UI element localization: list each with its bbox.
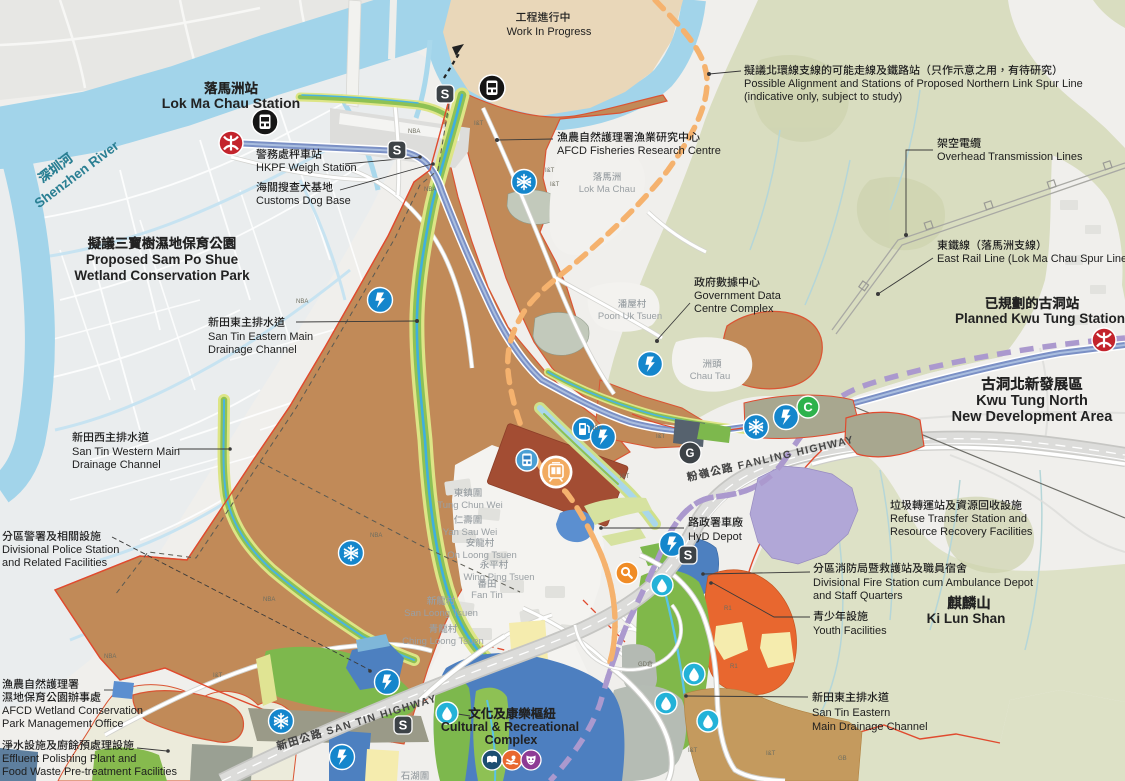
svg-text:分區警署及相關設施: 分區警署及相關設施 <box>2 530 101 543</box>
svg-text:永平村: 永平村 <box>480 559 509 571</box>
svg-text:I&T: I&T <box>620 474 630 480</box>
svg-text:I&T: I&T <box>688 748 698 754</box>
svg-text:文化及康樂樞紐: 文化及康樂樞紐 <box>467 707 556 721</box>
svg-text:and Related Facilities: and Related Facilities <box>2 557 108 569</box>
svg-text:NBA: NBA <box>590 426 602 432</box>
svg-text:Ching Loong Tsuen: Ching Loong Tsuen <box>402 636 484 647</box>
svg-text:NBA: NBA <box>104 654 116 660</box>
svg-text:Chau Tau: Chau Tau <box>690 371 731 382</box>
svg-text:番田: 番田 <box>477 579 496 590</box>
svg-text:East Rail Line (Lok Ma Chau Sp: East Rail Line (Lok Ma Chau Spur Line) <box>937 253 1125 265</box>
svg-text:海關搜查犬基地: 海關搜查犬基地 <box>256 181 333 194</box>
svg-text:NBA: NBA <box>263 597 275 603</box>
svg-text:Overhead Transmission Lines: Overhead Transmission Lines <box>937 151 1083 163</box>
svg-text:政府數據中心: 政府數據中心 <box>694 276 760 289</box>
svg-text:淨水設施及廚餘預處理設施: 淨水設施及廚餘預處理設施 <box>2 739 134 752</box>
svg-text:I&T: I&T <box>545 168 555 174</box>
svg-text:落馬洲: 落馬洲 <box>593 171 622 183</box>
svg-text:青少年設施: 青少年設施 <box>813 610 868 623</box>
svg-text:Planned Kwu Tung Station: Planned Kwu Tung Station <box>955 311 1125 326</box>
svg-text:AFCD Fisheries Research Centre: AFCD Fisheries Research Centre <box>557 145 721 157</box>
svg-text:NBA: NBA <box>408 129 420 135</box>
svg-text:Complex: Complex <box>485 733 538 747</box>
svg-text:垃圾轉運站及資源回收設施: 垃圾轉運站及資源回收設施 <box>890 499 1022 512</box>
svg-text:Yan Sau Wei: Yan Sau Wei <box>443 527 498 538</box>
svg-text:新龍村: 新龍村 <box>427 595 456 607</box>
svg-text:Lok Ma Chau: Lok Ma Chau <box>579 184 636 195</box>
svg-text:警務處秤車站: 警務處秤車站 <box>256 148 322 161</box>
svg-text:R1: R1 <box>730 664 738 670</box>
svg-text:Wing Ping Tsuen: Wing Ping Tsuen <box>463 572 534 583</box>
svg-text:Customs Dog Base: Customs Dog Base <box>256 195 351 207</box>
svg-text:分區消防局暨救護站及職員宿舍: 分區消防局暨救護站及職員宿舍 <box>813 562 967 575</box>
svg-text:新田西主排水道: 新田西主排水道 <box>72 431 149 444</box>
svg-text:已規劃的古洞站: 已規劃的古洞站 <box>985 296 1080 311</box>
svg-text:Ki Lun Shan: Ki Lun Shan <box>927 611 1006 626</box>
svg-text:安龍村: 安龍村 <box>466 537 495 549</box>
svg-text:Tung Chun Wei: Tung Chun Wei <box>437 500 502 511</box>
svg-text:Possible Alignment and Station: Possible Alignment and Stations of Propo… <box>744 78 1083 90</box>
svg-text:HKPF Weigh Station: HKPF Weigh Station <box>256 162 357 174</box>
svg-text:Cultural & Recreational: Cultural & Recreational <box>441 720 579 734</box>
svg-text:Fan Tin: Fan Tin <box>471 590 503 601</box>
svg-text:I&T: I&T <box>213 673 223 679</box>
svg-text:Food Waste Pre-treatment Facil: Food Waste Pre-treatment Facilities <box>2 766 178 778</box>
svg-text:新田東主排水道: 新田東主排水道 <box>208 316 285 329</box>
svg-text:Drainage Channel: Drainage Channel <box>208 344 297 356</box>
svg-text:Park Management Office: Park Management Office <box>2 718 123 730</box>
svg-text:東鐵線（落馬洲支線）: 東鐵線（落馬洲支線） <box>937 239 1047 252</box>
svg-text:NBA: NBA <box>424 187 436 193</box>
svg-text:Government Data: Government Data <box>694 290 782 302</box>
svg-text:San Tin Western Main: San Tin Western Main <box>72 446 180 458</box>
svg-text:San Tin Eastern: San Tin Eastern <box>812 707 890 719</box>
svg-text:and Staff Quarters: and Staff Quarters <box>813 590 903 602</box>
svg-text:NBA: NBA <box>370 533 382 539</box>
svg-text:San Tin Eastern Main: San Tin Eastern Main <box>208 331 313 343</box>
svg-text:石湖圍: 石湖圍 <box>401 771 430 781</box>
svg-text:GD倉: GD倉 <box>638 660 653 668</box>
svg-text:Wetland Conservation Park: Wetland Conservation Park <box>74 268 250 283</box>
svg-text:Work In Progress: Work In Progress <box>507 26 592 38</box>
svg-text:Effluent Polishing Plant and: Effluent Polishing Plant and <box>2 753 136 765</box>
svg-text:I&T: I&T <box>550 182 560 188</box>
svg-text:Resource Recovery Facilities: Resource Recovery Facilities <box>890 526 1033 538</box>
svg-text:漁農自然護理署漁業研究中心: 漁農自然護理署漁業研究中心 <box>557 131 700 144</box>
svg-text:新田東主排水道: 新田東主排水道 <box>812 691 889 704</box>
svg-text:青龍村: 青龍村 <box>429 623 458 635</box>
svg-text:Proposed Sam Po Shue: Proposed Sam Po Shue <box>86 252 239 267</box>
svg-text:工程進行中: 工程進行中 <box>516 11 571 24</box>
svg-text:麒麟山: 麒麟山 <box>947 595 991 612</box>
svg-text:擬議北環線支線的可能走線及鐵路站（只作示意之用，有待研究）: 擬議北環線支線的可能走線及鐵路站（只作示意之用，有待研究） <box>744 64 1063 77</box>
svg-text:I&T: I&T <box>474 121 484 127</box>
svg-text:擬議三寶樹濕地保育公園: 擬議三寶樹濕地保育公園 <box>88 236 237 251</box>
svg-text:I&T: I&T <box>656 434 666 440</box>
svg-text:Poon Uk Tsuen: Poon Uk Tsuen <box>598 311 662 322</box>
svg-text:Lok Ma Chau Station: Lok Ma Chau Station <box>162 95 300 111</box>
svg-text:Refuse Transfer Station and: Refuse Transfer Station and <box>890 513 1027 525</box>
svg-text:架空電纜: 架空電纜 <box>937 137 981 150</box>
svg-text:古洞北新發展區: 古洞北新發展區 <box>981 376 1083 393</box>
svg-text:R1: R1 <box>724 606 732 612</box>
svg-text:潘屋村: 潘屋村 <box>618 298 647 310</box>
svg-text:Main Drainage Channel: Main Drainage Channel <box>812 721 928 733</box>
svg-text:Drainage Channel: Drainage Channel <box>72 459 161 471</box>
svg-text:Centre Complex: Centre Complex <box>694 303 774 315</box>
svg-text:HyD Depot: HyD Depot <box>688 531 742 543</box>
svg-text:New Development Area: New Development Area <box>952 409 1114 425</box>
svg-text:Divisional Fire Station cum Am: Divisional Fire Station cum Ambulance De… <box>813 577 1033 589</box>
svg-text:Divisional Police Station: Divisional Police Station <box>2 544 119 556</box>
svg-text:落馬洲站: 落馬洲站 <box>204 81 258 96</box>
svg-text:San Loong Tsuen: San Loong Tsuen <box>404 608 478 619</box>
svg-text:Youth Facilities: Youth Facilities <box>813 625 887 637</box>
svg-text:NBA: NBA <box>296 299 308 305</box>
svg-text:洲頭: 洲頭 <box>702 359 722 370</box>
svg-text:東鎮圍: 東鎮圍 <box>454 487 483 499</box>
svg-text:GB: GB <box>838 756 847 762</box>
svg-text:AFCD Wetland Conservation: AFCD Wetland Conservation <box>2 705 143 717</box>
svg-text:路政署車廠: 路政署車廠 <box>688 516 743 529</box>
svg-text:漁農自然護理署: 漁農自然護理署 <box>2 678 79 691</box>
svg-text:濕地保育公園辦事處: 濕地保育公園辦事處 <box>2 691 101 704</box>
svg-text:I&T: I&T <box>766 751 776 757</box>
svg-text:(indicative only, subject to s: (indicative only, subject to study) <box>744 91 902 103</box>
svg-text:Kwu Tung North: Kwu Tung North <box>976 393 1088 409</box>
svg-text:仁壽圍: 仁壽圍 <box>454 514 483 526</box>
